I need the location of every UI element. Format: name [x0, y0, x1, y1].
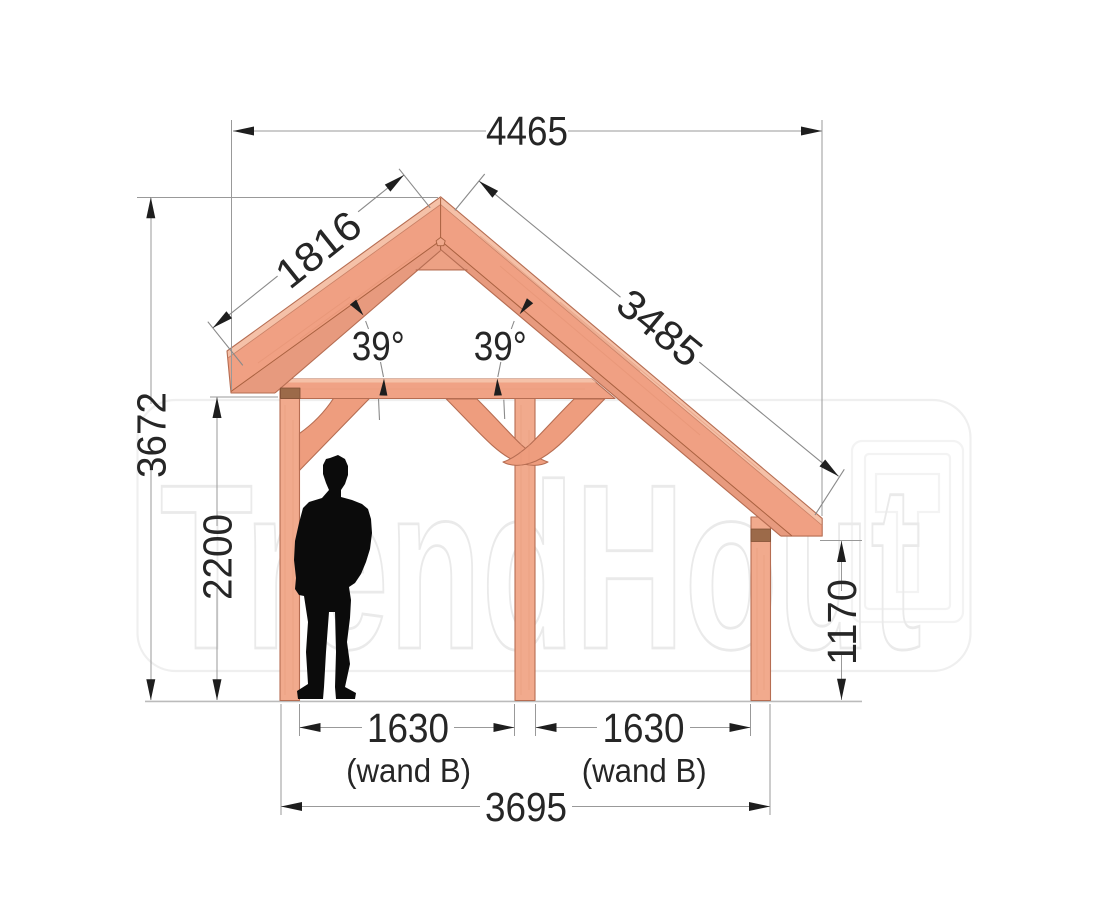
- svg-text:TrendHout: TrendHout: [160, 436, 921, 698]
- svg-text:3695: 3695: [485, 784, 567, 830]
- svg-text:4465: 4465: [486, 108, 568, 154]
- svg-text:3672: 3672: [128, 392, 174, 478]
- svg-text:39°: 39°: [474, 323, 527, 369]
- svg-text:2200: 2200: [195, 514, 241, 600]
- svg-text:1630: 1630: [603, 705, 685, 751]
- svg-text:1170: 1170: [819, 579, 865, 665]
- svg-text:(wand B): (wand B): [582, 752, 707, 789]
- svg-text:39°: 39°: [352, 323, 405, 369]
- svg-text:1630: 1630: [367, 705, 449, 751]
- svg-text:(wand B): (wand B): [346, 752, 471, 789]
